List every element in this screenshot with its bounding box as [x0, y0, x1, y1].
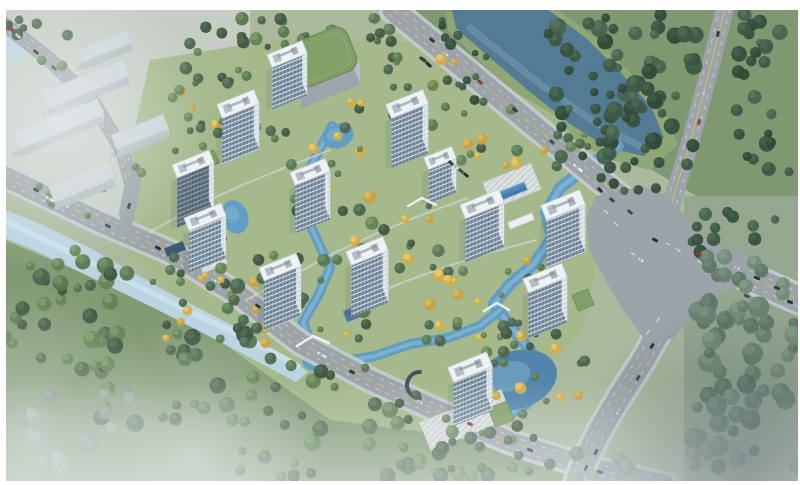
render-scene — [0, 0, 800, 485]
haze — [0, 0, 800, 485]
frame-bottom — [0, 481, 800, 485]
haze-layer — [0, 0, 800, 485]
frame-left — [0, 0, 6, 485]
aerial-residential-render — [0, 0, 800, 485]
frame-top — [0, 0, 800, 10]
